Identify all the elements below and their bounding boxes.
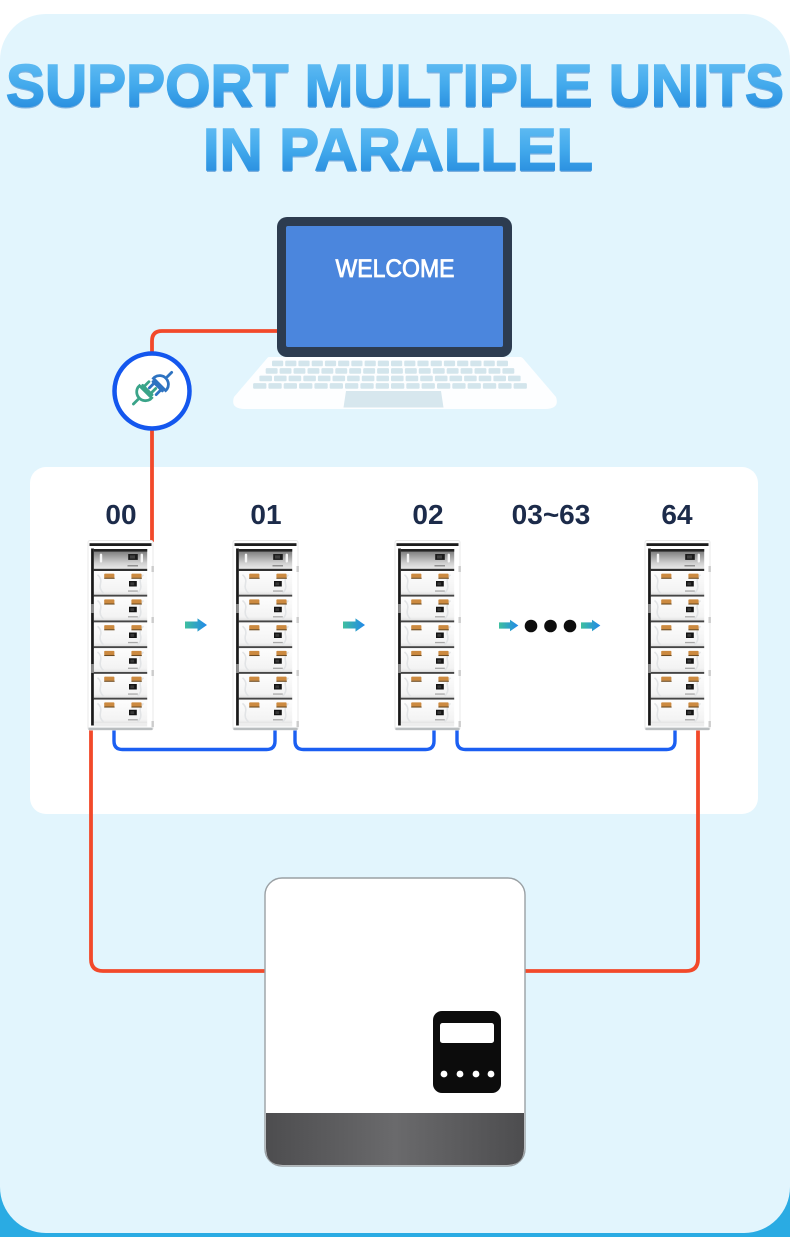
svg-text:WELCOME: WELCOME — [336, 255, 455, 283]
svg-text:64: 64 — [661, 499, 693, 530]
svg-text:03~63: 03~63 — [512, 499, 591, 530]
svg-text:IN PARALLEL: IN PARALLEL — [203, 117, 593, 183]
svg-text:SUPPORT MULTIPLE UNITS: SUPPORT MULTIPLE UNITS — [6, 53, 784, 119]
svg-text:02: 02 — [412, 499, 443, 530]
svg-text:01: 01 — [250, 499, 281, 530]
svg-text:00: 00 — [105, 499, 136, 530]
